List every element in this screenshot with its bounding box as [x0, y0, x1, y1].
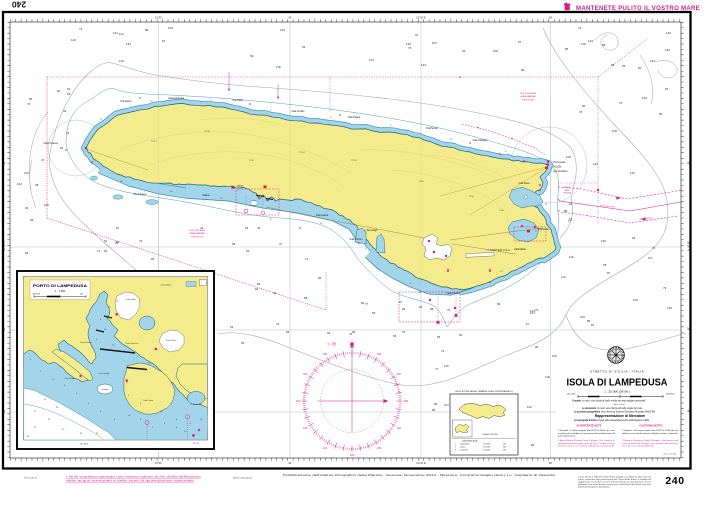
- svg-text:330: 330: [323, 352, 328, 356]
- svg-text:72: 72: [27, 102, 31, 106]
- svg-text:65: 65: [393, 334, 397, 338]
- svg-text:56: 56: [352, 330, 356, 334]
- svg-text:150: 150: [377, 446, 382, 450]
- svg-text:85: 85: [564, 209, 568, 213]
- svg-text:96: 96: [582, 104, 586, 108]
- svg-text:Linosa: Linosa: [460, 447, 465, 449]
- svg-text:32’: 32’: [687, 161, 690, 165]
- svg-text:99: 99: [622, 64, 626, 68]
- svg-text:67: 67: [162, 39, 166, 43]
- svg-text:57: 57: [116, 226, 120, 230]
- svg-text:137: 137: [630, 171, 635, 175]
- svg-text:78: 78: [579, 110, 583, 114]
- svg-text:0: 0: [619, 393, 620, 395]
- svg-text:35° 30’: 35° 30’: [193, 443, 199, 445]
- svg-text:PORTO DI LAMPEDUSA: PORTO DI LAMPEDUSA: [33, 283, 87, 288]
- svg-text:060: 060: [397, 372, 402, 376]
- svg-text:Porto: Porto: [237, 185, 243, 188]
- svg-text:Cala Pisana: Cala Pisana: [348, 117, 361, 119]
- svg-text:AREA MARINA: AREA MARINA: [190, 232, 205, 235]
- svg-text:124: 124: [650, 59, 655, 63]
- svg-text:270: 270: [296, 399, 301, 403]
- svg-text:Scoglio: Scoglio: [102, 389, 110, 391]
- svg-text:26’: 26’: [687, 409, 690, 413]
- svg-text:1:25.000: 1:25.000: [483, 447, 490, 449]
- svg-text:97: 97: [518, 40, 522, 44]
- svg-text:Cala Uccello: Cala Uccello: [292, 111, 306, 113]
- svg-text:93: 93: [632, 236, 636, 240]
- svg-text:97: 97: [399, 300, 403, 304]
- svg-text:La topografia interna si basa: La topografia interna si basa sulla cart…: [574, 419, 650, 422]
- svg-text:Scala 1:25.000: Scala 1:25.000: [663, 454, 676, 456]
- svg-text:ISOLE PELAGIE (MARE MEDITERRAN: ISOLE PELAGIE (MARE MEDITERRANEO): [455, 390, 514, 393]
- svg-text:102: 102: [17, 182, 22, 186]
- svg-text:241: 241: [503, 447, 506, 449]
- svg-text:74: 74: [66, 131, 70, 135]
- svg-text:CAUTIONS NOTES: CAUTIONS NOTES: [639, 424, 662, 428]
- svg-text:Cala Maluk: Cala Maluk: [514, 249, 526, 251]
- svg-text:34’: 34’: [288, 462, 292, 465]
- svg-text:79: 79: [535, 308, 539, 312]
- svg-text:98: 98: [611, 63, 615, 67]
- svg-text:74: 74: [441, 349, 445, 353]
- svg-text:113: 113: [561, 275, 566, 279]
- svg-text:2 Area Marina Protetta Isole P: 2 Area Marina Protetta Isole Pelagie - P…: [558, 439, 616, 442]
- svg-text:34: 34: [115, 241, 119, 245]
- svg-text:12°32’: 12°32’: [155, 17, 163, 20]
- svg-text:delle acque territoriali e del: delle acque territoriali e delle zone di…: [66, 479, 195, 482]
- svg-text:133: 133: [421, 63, 426, 67]
- svg-text:102: 102: [527, 405, 532, 409]
- svg-text:242: 242: [503, 450, 506, 452]
- svg-text:1:25.000: 1:25.000: [483, 444, 490, 446]
- svg-text:72: 72: [652, 246, 656, 250]
- svg-text:86: 86: [257, 282, 261, 286]
- svg-text:12°36’ E: 12°36’ E: [416, 17, 426, 20]
- svg-text:Vgs Semaforo: Vgs Semaforo: [553, 170, 568, 173]
- svg-text:60: 60: [57, 89, 61, 93]
- svg-text:118: 118: [276, 65, 281, 69]
- svg-text:125: 125: [667, 306, 672, 310]
- svg-text:94: 94: [327, 331, 331, 335]
- svg-text:Vallone: Vallone: [202, 195, 210, 197]
- svg-text:Cala Palma: Cala Palma: [166, 340, 178, 342]
- svg-text:210: 210: [323, 446, 328, 450]
- svg-text:ISOLE PELAGIE: ISOLE PELAGIE: [520, 92, 537, 95]
- svg-text:66: 66: [419, 305, 423, 309]
- svg-text:Carta Titolo Scala: Carta Titolo Scala: [462, 440, 478, 443]
- svg-text:89: 89: [521, 68, 525, 72]
- svg-text:240: 240: [303, 426, 308, 430]
- svg-text:60: 60: [638, 66, 642, 70]
- svg-text:28’: 28’: [3, 327, 6, 331]
- svg-text:26’: 26’: [3, 409, 6, 413]
- svg-text:107: 107: [530, 311, 535, 315]
- svg-text:52: 52: [245, 226, 249, 230]
- svg-text:42: 42: [200, 226, 204, 230]
- svg-text:Metri 500: Metri 500: [567, 392, 575, 395]
- svg-text:Cala Calandra: Cala Calandra: [473, 139, 488, 142]
- svg-text:43: 43: [63, 109, 67, 113]
- svg-text:69: 69: [255, 287, 259, 291]
- svg-text:43: 43: [273, 291, 277, 295]
- svg-text:107: 107: [444, 403, 449, 407]
- svg-text:88: 88: [304, 296, 308, 300]
- svg-text:74: 74: [408, 46, 412, 50]
- svg-text:quelli rappresentati.: quelli rappresentati.: [558, 435, 576, 438]
- svg-text:Cala Creta: Cala Creta: [519, 182, 531, 185]
- svg-text:35°30’ N: 35°30’ N: [687, 241, 690, 251]
- svg-text:108: 108: [493, 49, 498, 53]
- svg-text:79: 79: [663, 286, 667, 290]
- svg-text:regolamentazione delle zone A,: regolamentazione delle zone A, B e C ved…: [558, 442, 615, 445]
- svg-text:(Zo = 0,1 m): (Zo = 0,1 m): [614, 404, 625, 406]
- svg-text:92: 92: [25, 206, 29, 210]
- svg-text:56: 56: [437, 335, 441, 339]
- svg-text:P.ta Grecale: P.ta Grecale: [553, 161, 566, 164]
- svg-text:Pubblicazione dell’Istituto Id: Pubblicazione dell’Istituto Idrografico …: [283, 474, 556, 477]
- svg-text:69: 69: [30, 218, 34, 222]
- svg-text:030: 030: [377, 352, 382, 356]
- svg-text:32’: 32’: [3, 161, 6, 165]
- svg-text:Cala Croce: Cala Croce: [143, 399, 154, 402]
- svg-text:090: 090: [404, 399, 409, 403]
- svg-text:1000 Metri: 1000 Metri: [666, 392, 676, 395]
- svg-text:87: 87: [665, 87, 669, 91]
- svg-text:77: 77: [568, 219, 572, 223]
- svg-text:77: 77: [365, 302, 369, 306]
- svg-text:Lampedusa: Lampedusa: [460, 444, 469, 446]
- svg-text:1: 1: [455, 444, 456, 446]
- svg-text:76: 76: [139, 239, 143, 243]
- svg-text:132: 132: [280, 28, 285, 32]
- svg-text:90: 90: [434, 402, 438, 406]
- svg-text:SCALA 1:750.000: SCALA 1:750.000: [482, 433, 497, 436]
- svg-text:85: 85: [565, 47, 569, 51]
- svg-text:12°36’ E: 12°36’ E: [416, 462, 426, 465]
- svg-text:Cala Galera: Cala Galera: [316, 214, 329, 217]
- svg-text:ZONA DI: ZONA DI: [563, 186, 571, 189]
- svg-text:I fondali, in metri, sono rido: I fondali, in metri, sono ridotti al liv…: [572, 400, 645, 403]
- svg-text:58: 58: [430, 307, 434, 311]
- svg-text:46: 46: [257, 226, 261, 230]
- svg-text:ask to the local competent Aut: ask to the local competent Authority.: [622, 445, 654, 448]
- svg-text:140: 140: [71, 38, 76, 42]
- svg-text:106: 106: [44, 203, 49, 207]
- svg-text:61: 61: [67, 87, 71, 91]
- svg-text:96: 96: [531, 443, 535, 447]
- svg-text:64: 64: [246, 249, 250, 253]
- svg-text:Porto Vecchio: Porto Vecchio: [126, 342, 140, 345]
- svg-text:47: 47: [41, 158, 45, 162]
- svg-text:P.ta Alaimo: P.ta Alaimo: [120, 100, 132, 103]
- svg-text:96: 96: [432, 408, 436, 412]
- svg-text:94: 94: [462, 49, 466, 53]
- svg-text:180: 180: [350, 453, 355, 457]
- svg-text:109: 109: [580, 315, 585, 319]
- svg-text:73: 73: [276, 322, 280, 326]
- svg-text:100: 100: [24, 171, 29, 175]
- svg-text:74: 74: [578, 26, 582, 30]
- svg-text:PROTETTA: PROTETTA: [522, 98, 534, 101]
- svg-text:103: 103: [642, 96, 647, 100]
- svg-text:129: 129: [119, 59, 124, 63]
- svg-text:91: 91: [415, 33, 419, 37]
- svg-text:88: 88: [602, 43, 606, 47]
- svg-text:81: 81: [591, 323, 595, 327]
- svg-text:dell’Istituto Idrografico dell: dell’Istituto Idrografico della Marina.: [578, 486, 611, 489]
- svg-text:140: 140: [593, 162, 598, 166]
- svg-text:65: 65: [241, 341, 245, 345]
- svg-text:59: 59: [232, 242, 236, 246]
- svg-text:Prima ediz. B: Prima ediz. B: [24, 477, 38, 480]
- svg-text:64: 64: [60, 146, 64, 150]
- svg-text:115: 115: [444, 364, 449, 368]
- svg-text:120: 120: [397, 426, 402, 430]
- svg-text:PROTETTA: PROTETTA: [191, 235, 203, 238]
- svg-text:87: 87: [607, 271, 611, 275]
- svg-text:35°30’ N: 35°30’ N: [3, 241, 6, 251]
- svg-text:71: 71: [97, 249, 101, 253]
- svg-text:allow to exclude lesser depths: allow to exclude lesser depths than char…: [622, 432, 679, 435]
- svg-text:67: 67: [526, 322, 530, 326]
- svg-text:70: 70: [447, 308, 451, 312]
- svg-text:117: 117: [648, 256, 653, 260]
- svg-text:Cala Croce: Cala Croce: [446, 292, 458, 295]
- svg-text:119: 119: [569, 255, 574, 259]
- svg-text:rules of zones A, B and C see: rules of zones A, B and C see nautical d…: [622, 442, 679, 445]
- svg-text:Metri 100: Metri 100: [33, 293, 40, 296]
- svg-text:MARE: MARE: [564, 189, 570, 192]
- svg-text:38’: 38’: [549, 17, 553, 20]
- svg-text:1 Fondali - I rilievi eseguiti: 1 Fondali - I rilievi eseguiti dal 1873 …: [558, 429, 615, 432]
- svg-text:Carta Nautica Ufficiale dello: Carta Nautica Ufficiale dello Stato (Leg…: [578, 475, 652, 478]
- svg-text:I. dei Conigli: I. dei Conigli: [365, 230, 378, 232]
- svg-text:65: 65: [151, 257, 155, 261]
- svg-text:130: 130: [665, 48, 670, 52]
- svg-text:2: 2: [455, 447, 456, 449]
- svg-text:12° 36’ E: 12° 36’ E: [80, 444, 89, 446]
- svg-text:114: 114: [119, 32, 124, 36]
- svg-text:200: 200: [80, 294, 83, 296]
- svg-text:59: 59: [372, 311, 376, 315]
- svg-text:1 : 7.500: 1 : 7.500: [55, 289, 66, 293]
- svg-text:89: 89: [145, 28, 149, 32]
- svg-text:Norme al Navigante: Norme al Navigante: [233, 477, 253, 480]
- svg-text:107: 107: [432, 41, 437, 45]
- svg-text:63: 63: [230, 325, 234, 329]
- svg-text:100: 100: [168, 26, 173, 30]
- svg-text:126: 126: [601, 239, 606, 243]
- svg-text:aggiornata secondo le norme in: aggiornata secondo le norme internaziona…: [578, 481, 652, 484]
- svg-text:96: 96: [535, 345, 539, 349]
- svg-text:85: 85: [318, 276, 322, 280]
- svg-text:menti nautici; consultare l’Au: menti nautici; consultare l’Autorità com…: [558, 445, 616, 448]
- svg-text:LAMPEDUSA: LAMPEDUSA: [488, 248, 511, 252]
- svg-text:P.ta Sottile: P.ta Sottile: [538, 228, 550, 231]
- svg-text:108: 108: [566, 155, 571, 159]
- svg-text:64: 64: [104, 249, 108, 253]
- svg-text:AREA MARINA: AREA MARINA: [521, 95, 536, 98]
- svg-text:AVVERTENZE NOTE: AVVERTENZE NOTE: [576, 424, 601, 428]
- svg-text:Fl(3)15s: Fl(3)15s: [553, 167, 562, 169]
- svg-text:240: 240: [665, 475, 684, 487]
- svg-text:50: 50: [459, 333, 463, 337]
- svg-text:93: 93: [286, 330, 290, 334]
- svg-text:63: 63: [67, 92, 71, 96]
- svg-text:90: 90: [659, 112, 663, 116]
- svg-text:Cala Pulcino: Cala Pulcino: [350, 239, 364, 241]
- svg-text:131: 131: [113, 31, 118, 35]
- svg-text:131: 131: [126, 42, 131, 46]
- svg-text:51: 51: [104, 239, 108, 243]
- svg-text:240: 240: [503, 444, 506, 446]
- svg-text:Cala Salina: Cala Salina: [126, 299, 137, 301]
- svg-text:I limiti marittimi riportati n: I limiti marittimi riportati non hanno v…: [66, 476, 202, 479]
- svg-text:93: 93: [302, 45, 306, 49]
- svg-text:2 Marine Reserve Isole Pelagie: 2 Marine Reserve Isole Pelagie - For lim…: [622, 439, 678, 442]
- svg-text:5 kn: 5 kn: [326, 344, 330, 346]
- svg-text:37: 37: [279, 242, 283, 246]
- svg-text:78: 78: [603, 263, 607, 267]
- svg-text:38’: 38’: [549, 462, 553, 465]
- svg-text:240: 240: [12, 0, 26, 10]
- svg-text:28’: 28’: [687, 327, 690, 331]
- svg-text:P.ta Capperi: P.ta Capperi: [134, 193, 147, 196]
- svg-text:Cala Guitgia: Cala Guitgia: [98, 372, 110, 375]
- svg-text:118: 118: [545, 375, 550, 379]
- svg-text:59: 59: [402, 307, 406, 311]
- svg-text:105: 105: [633, 298, 638, 302]
- svg-text:parziale non autorizzata costi: parziale non autorizzata costituisce vio…: [578, 483, 652, 486]
- svg-text:P.ta Parrino: P.ta Parrino: [426, 127, 439, 130]
- svg-text:118: 118: [581, 42, 586, 46]
- svg-text:114: 114: [369, 58, 374, 62]
- svg-text:116: 116: [552, 354, 557, 358]
- svg-text:12°32’: 12°32’: [155, 462, 163, 465]
- svg-text:STRETTO DI SICILIA - ITALIA: STRETTO DI SICILIA - ITALIA: [590, 370, 644, 374]
- svg-text:69: 69: [250, 54, 254, 58]
- svg-text:79: 79: [349, 332, 353, 336]
- svg-text:Capo Ponente: Capo Ponente: [43, 142, 58, 145]
- svg-text:48: 48: [35, 183, 39, 187]
- svg-text:86: 86: [497, 302, 501, 306]
- svg-text:76: 76: [402, 330, 406, 334]
- svg-text:Porto Nuovo: Porto Nuovo: [80, 341, 92, 344]
- svg-text:ISOLA DI LAMPEDUSA: ISOLA DI LAMPEDUSA: [567, 378, 669, 389]
- svg-text:carta, conforme alle prescrizi: carta, conforme alle prescrizioni del Ca…: [578, 478, 651, 481]
- svg-text:66: 66: [29, 97, 33, 101]
- svg-text:Lampione: Lampione: [460, 450, 468, 452]
- svg-text:76: 76: [619, 101, 623, 105]
- svg-text:P.ta Guitgia: P.ta Guitgia: [65, 377, 76, 380]
- svg-text:Cala dell’Acqua: Cala dell’Acqua: [168, 97, 185, 100]
- svg-text:123: 123: [588, 39, 593, 43]
- svg-text:34’: 34’: [288, 17, 292, 20]
- svg-text:Cala Salina: Cala Salina: [161, 285, 172, 287]
- svg-text:Rappresentazione di Mercatore: Rappresentazione di Mercatore: [595, 414, 645, 418]
- svg-text:71: 71: [305, 257, 309, 261]
- svg-text:1:10.000: 1:10.000: [483, 450, 490, 452]
- svg-text:108: 108: [612, 129, 617, 133]
- svg-text:Le elevazioni, in metri, sono: Le elevazioni, in metri, sono riferite a…: [582, 407, 643, 410]
- svg-text:74: 74: [79, 27, 83, 31]
- svg-text:123: 123: [666, 31, 671, 35]
- svg-text:C. Madonna: C. Madonna: [190, 404, 202, 406]
- svg-text:000: 000: [350, 345, 355, 349]
- svg-text:sentono di escludere la presen: sentono di escludere la presenza di fond…: [558, 432, 616, 435]
- svg-text:3: 3: [455, 450, 456, 452]
- svg-text:77: 77: [435, 367, 439, 371]
- svg-text:1 Depths - Surveys made from 1: 1 Depths - Surveys made from 1873 to 193…: [622, 429, 679, 432]
- svg-text:94: 94: [569, 202, 573, 206]
- svg-text:VIETATA: VIETATA: [563, 192, 571, 195]
- svg-text:P.ta Parise: P.ta Parise: [233, 99, 245, 102]
- svg-text:1 : 25.000 (36°56’): 1 : 25.000 (36°56’): [604, 389, 630, 393]
- svg-text:300: 300: [303, 372, 308, 376]
- svg-text:82: 82: [25, 251, 29, 255]
